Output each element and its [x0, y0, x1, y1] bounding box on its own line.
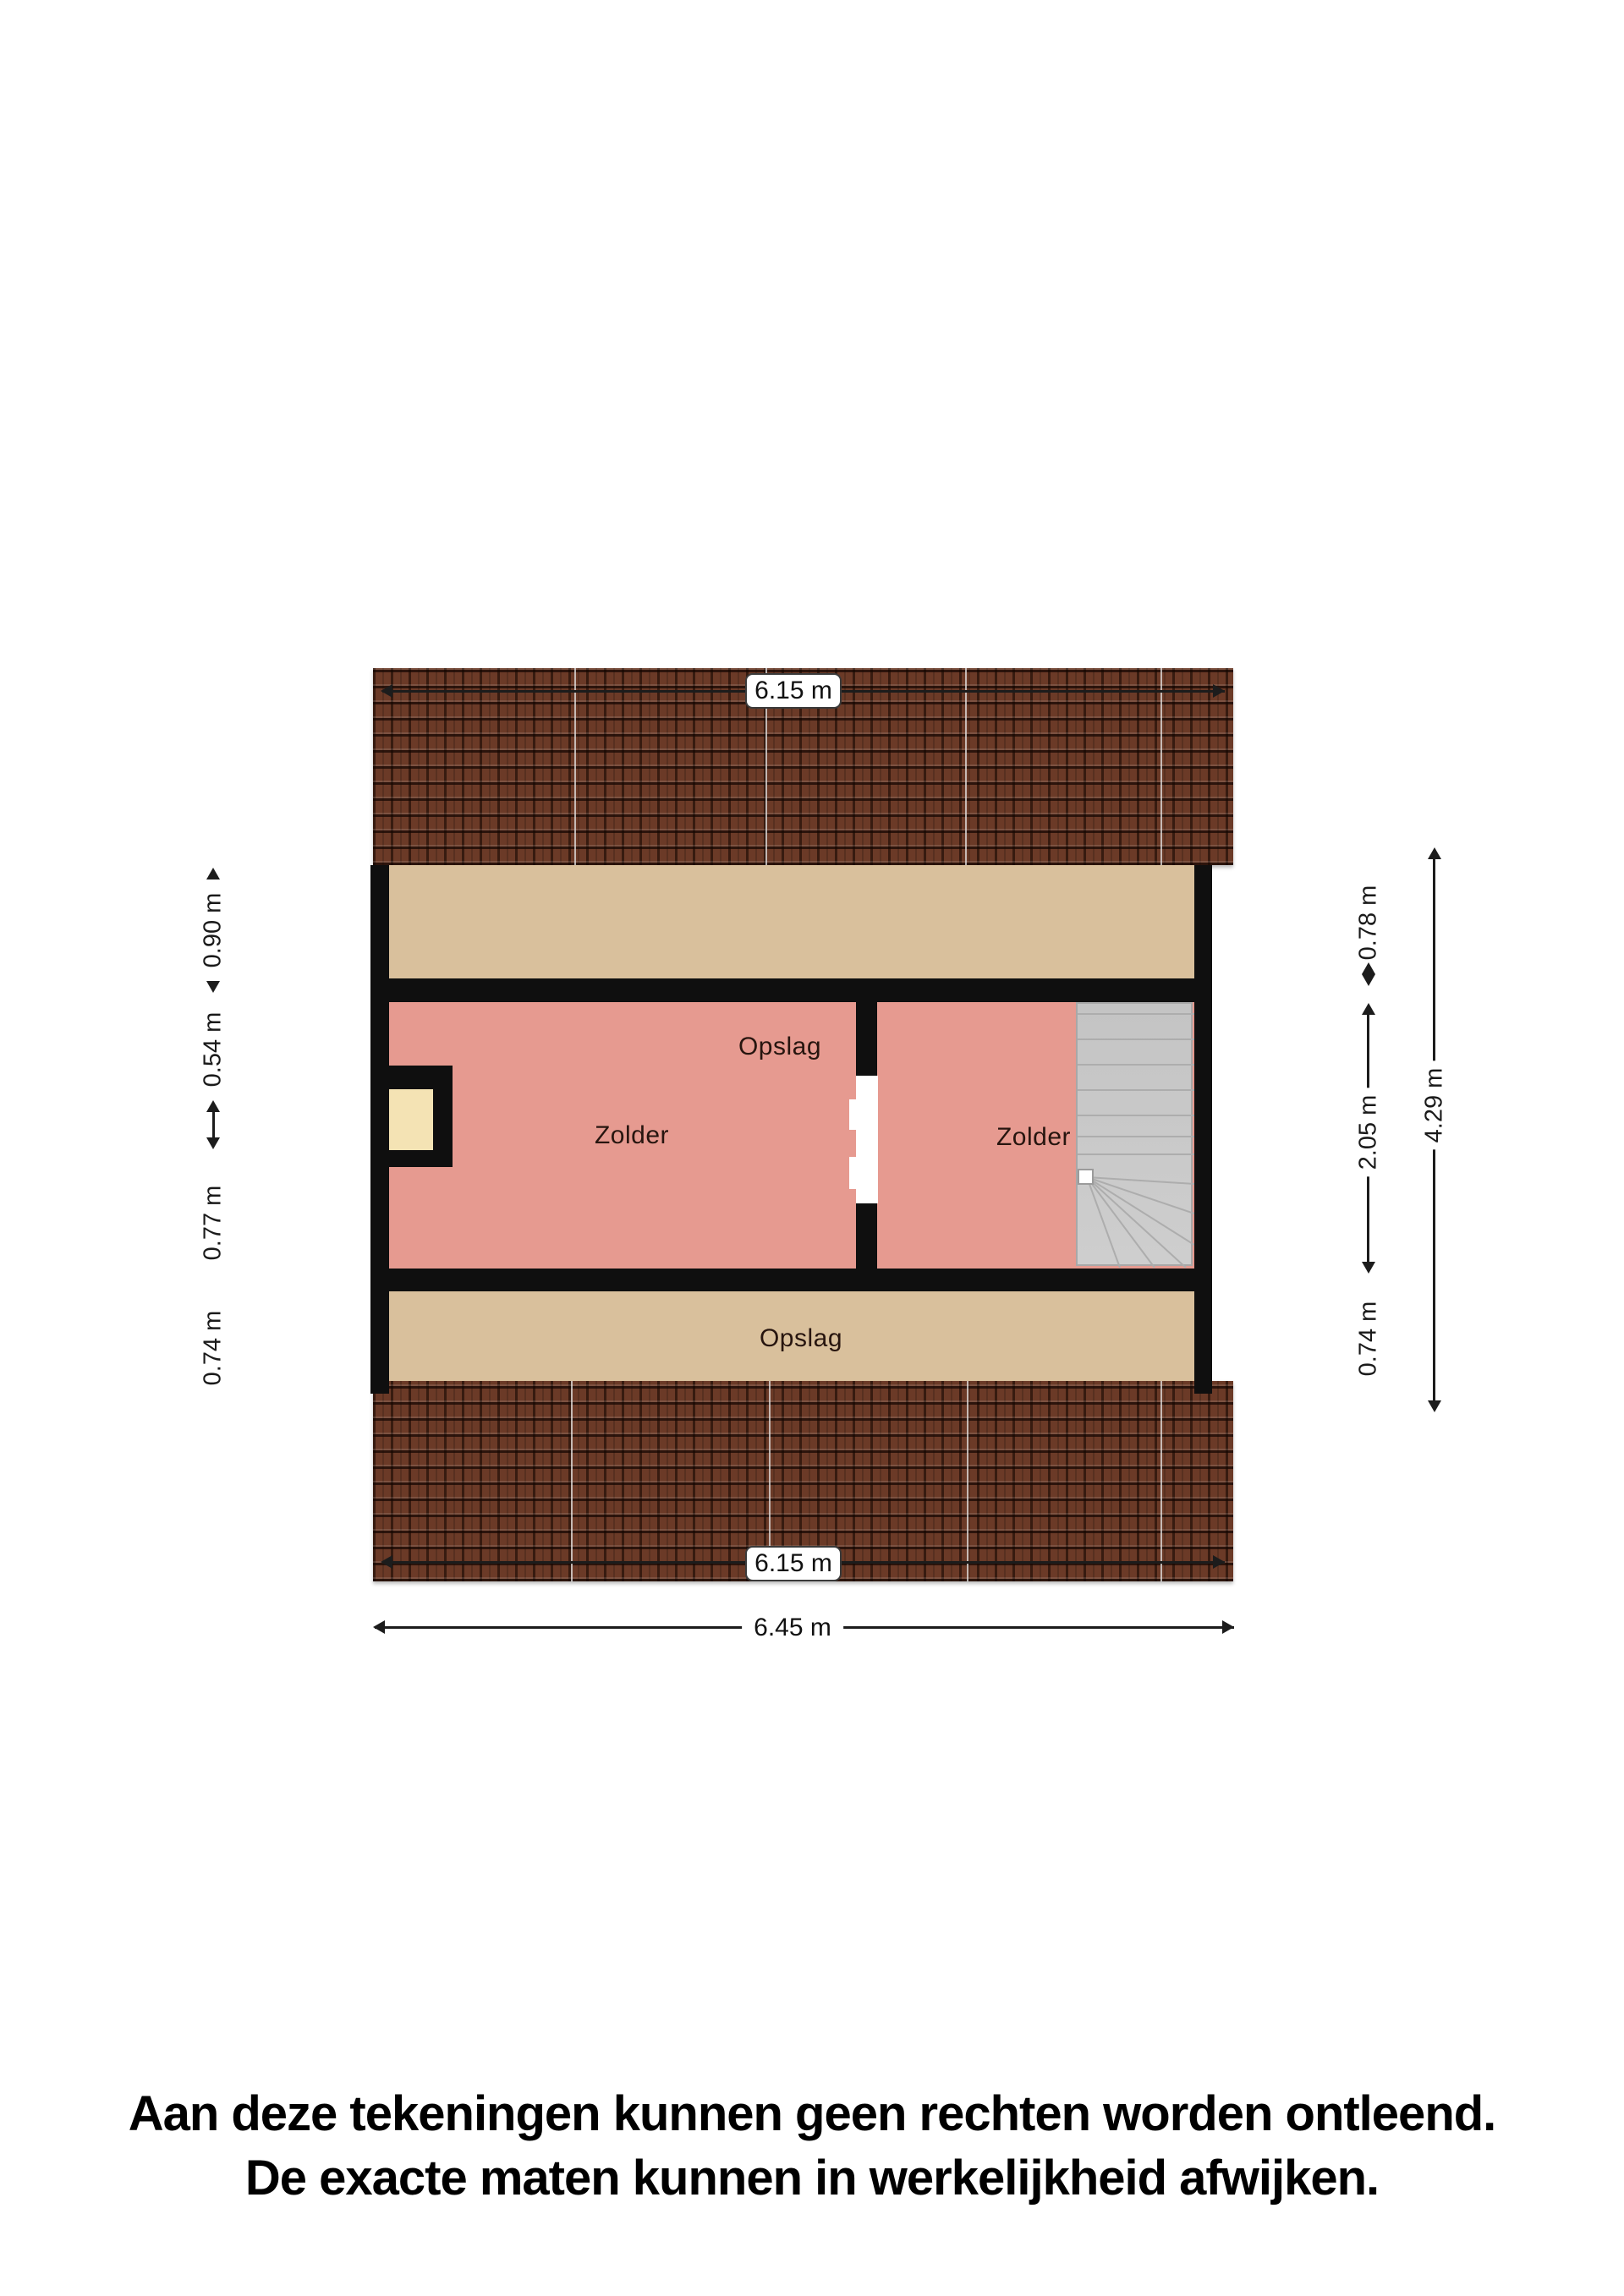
dim-label-total-width: 6.45 m	[742, 1612, 843, 1644]
dim-label-left-077: 0.77 m	[200, 1186, 228, 1261]
room-label-zolder-left: Zolder	[595, 1121, 669, 1150]
disclaimer-line-1: Aan deze tekeningen kunnen geen rechten …	[0, 2082, 1624, 2146]
room-label-opslag-top: Opslag	[738, 1033, 821, 1061]
arrow-up-icon	[1362, 962, 1375, 974]
storage-band-top	[389, 865, 1194, 978]
floorplan-page: Opslag Zolder Zolder Opslag 6.15 m 6.15 …	[0, 0, 1624, 2296]
arrow-left-icon	[373, 1620, 385, 1634]
arrow-right-icon	[1213, 684, 1225, 698]
wall-right	[1194, 865, 1212, 1394]
disclaimer-text: Aan deze tekeningen kunnen geen rechten …	[0, 2082, 1624, 2211]
roof-seam	[1160, 1381, 1162, 1581]
roof-seam	[965, 668, 967, 865]
door-opening-tab	[849, 1099, 858, 1130]
dim-label-total-height: 4.29 m	[1420, 1061, 1450, 1150]
arrow-right-icon	[1222, 1620, 1234, 1634]
niche-interior	[389, 1089, 433, 1150]
wall-horizontal-top	[389, 978, 1194, 1002]
dim-text: 6.15 m	[754, 1549, 832, 1578]
roof-seam	[967, 1381, 968, 1581]
dim-text: 6.15 m	[754, 677, 832, 705]
door-opening-tab	[849, 1157, 858, 1189]
arrow-down-icon	[1428, 1400, 1441, 1412]
arrow-right-icon	[1213, 1555, 1225, 1569]
arrow-down-icon	[1362, 974, 1375, 986]
wall-horizontal-bottom	[389, 1269, 1194, 1291]
arrow-down-icon	[1362, 1262, 1375, 1274]
dim-label-roof-bottom: 6.15 m	[745, 1546, 842, 1581]
staircase	[1076, 1002, 1193, 1266]
dim-label-left-090: 0.90 m	[200, 893, 228, 968]
dim-label-right-074: 0.74 m	[1355, 1301, 1383, 1377]
room-label-zolder-right: Zolder	[996, 1123, 1071, 1152]
door-opening	[856, 1076, 878, 1203]
dim-label-left-054: 0.54 m	[200, 1012, 228, 1088]
arrow-down-icon	[206, 981, 220, 993]
roof-seam	[574, 668, 576, 865]
arrow-left-icon	[381, 684, 392, 698]
disclaimer-line-2: De exacte maten kunnen in werkelijkheid …	[0, 2146, 1624, 2211]
dim-label-roof-top: 6.15 m	[745, 673, 842, 709]
dim-label-right-205: 2.05 m	[1354, 1088, 1384, 1177]
arrow-down-icon	[206, 1137, 220, 1149]
arrow-left-icon	[381, 1555, 392, 1569]
staircase-treads	[1078, 1004, 1194, 1268]
dim-label-right-078: 0.78 m	[1355, 885, 1383, 961]
arrow-up-icon	[206, 868, 220, 879]
room-label-opslag-bottom: Opslag	[760, 1324, 842, 1353]
dim-label-left-074: 0.74 m	[200, 1311, 228, 1386]
dim-line-left-small	[212, 1110, 215, 1139]
roof-seam	[1160, 668, 1162, 865]
roof-seam	[571, 1381, 573, 1581]
